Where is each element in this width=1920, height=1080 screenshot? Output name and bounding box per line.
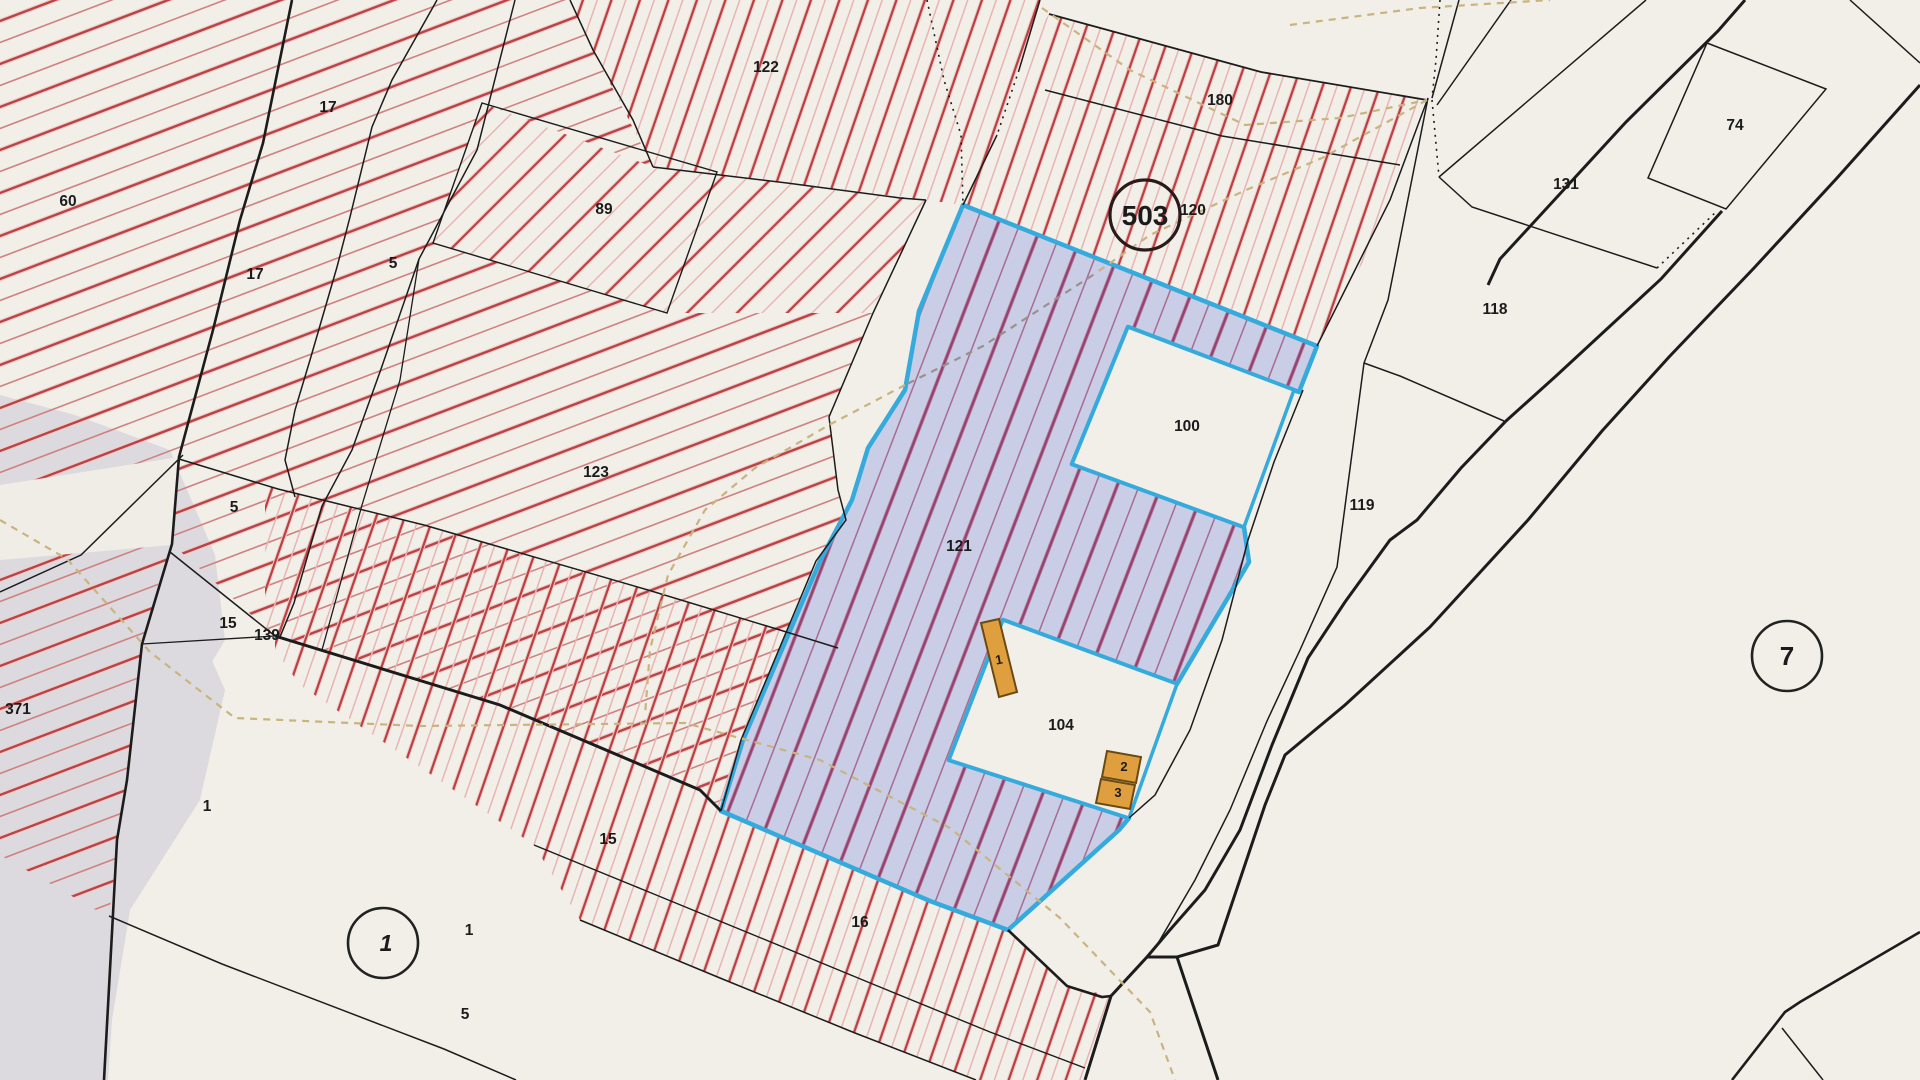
- svg-text:3: 3: [1114, 785, 1121, 800]
- svg-text:180: 180: [1207, 92, 1233, 109]
- svg-text:15: 15: [219, 615, 237, 632]
- svg-text:1: 1: [465, 922, 474, 939]
- svg-text:17: 17: [246, 266, 263, 283]
- svg-text:7: 7: [1780, 641, 1794, 671]
- svg-text:60: 60: [59, 193, 76, 210]
- svg-text:74: 74: [1726, 117, 1744, 134]
- svg-text:120: 120: [1180, 202, 1206, 219]
- svg-text:104: 104: [1048, 717, 1074, 734]
- svg-text:122: 122: [753, 59, 779, 76]
- svg-text:2: 2: [1120, 759, 1127, 774]
- svg-text:1: 1: [203, 798, 212, 815]
- svg-text:100: 100: [1174, 418, 1200, 435]
- svg-text:119: 119: [1349, 497, 1374, 514]
- svg-text:123: 123: [583, 464, 609, 481]
- svg-text:17: 17: [319, 99, 336, 116]
- svg-text:5: 5: [389, 255, 398, 272]
- svg-text:139: 139: [254, 627, 280, 644]
- svg-text:371: 371: [5, 701, 31, 718]
- svg-text:121: 121: [946, 538, 972, 555]
- svg-text:131: 131: [1553, 176, 1579, 193]
- svg-text:118: 118: [1482, 301, 1507, 318]
- svg-text:5: 5: [230, 499, 239, 516]
- svg-text:16: 16: [851, 914, 869, 931]
- svg-text:503: 503: [1122, 200, 1169, 231]
- svg-text:1: 1: [380, 930, 393, 956]
- svg-text:15: 15: [599, 831, 617, 848]
- svg-text:5: 5: [461, 1006, 470, 1023]
- svg-text:89: 89: [595, 201, 613, 218]
